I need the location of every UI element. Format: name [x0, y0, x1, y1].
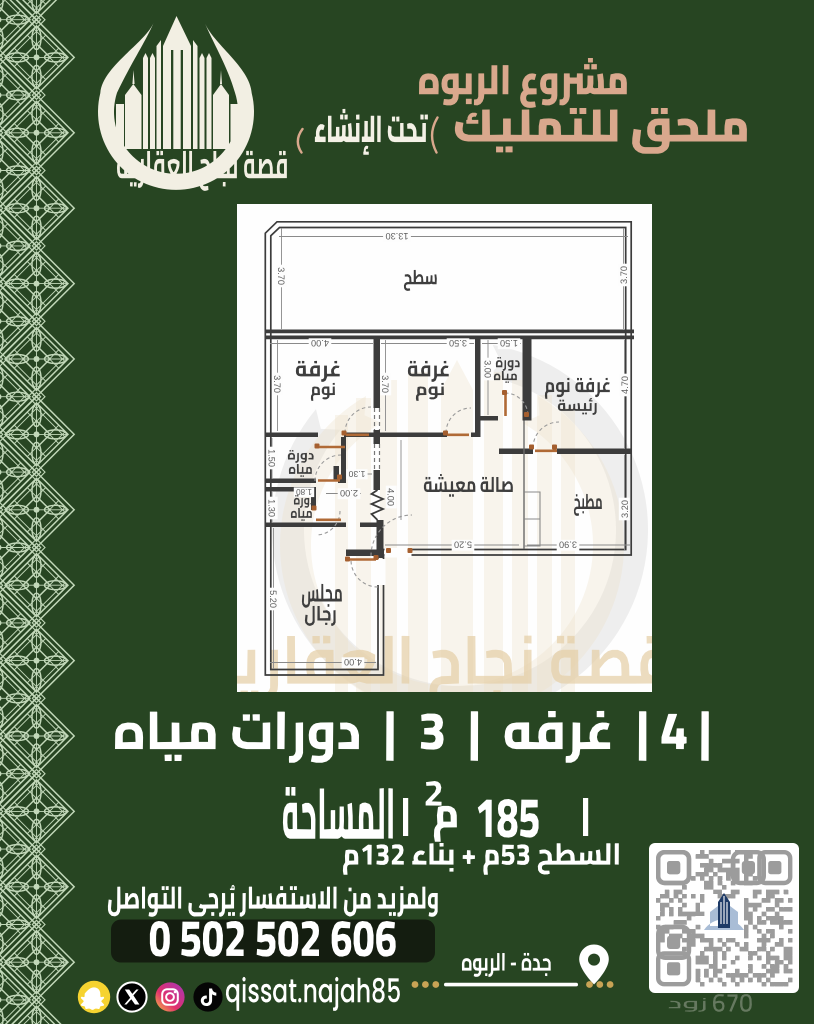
svg-text:3.00: 3.00	[483, 360, 493, 378]
svg-text:5.20: 5.20	[268, 590, 278, 608]
svg-text:4.00: 4.00	[311, 338, 329, 348]
svg-text:3.90: 3.90	[559, 540, 577, 550]
svg-text:3.20: 3.20	[620, 500, 630, 518]
svg-text:1.50: 1.50	[267, 449, 277, 467]
svg-text:1.30: 1.30	[348, 469, 365, 479]
svg-text:1.30: 1.30	[267, 499, 277, 517]
svg-text:4.00: 4.00	[344, 657, 362, 667]
svg-text:3.70: 3.70	[272, 375, 282, 393]
svg-text:5.20: 5.20	[454, 540, 472, 550]
svg-text:4.00: 4.00	[386, 488, 396, 506]
svg-text:3.70: 3.70	[619, 266, 629, 284]
svg-text:1.80: 1.80	[296, 487, 312, 496]
svg-text:3.70: 3.70	[276, 267, 286, 285]
svg-text:1.50: 1.50	[500, 338, 518, 348]
svg-text:13.30: 13.30	[386, 231, 409, 241]
svg-text:3.50: 3.50	[449, 338, 467, 348]
svg-text:4.70: 4.70	[620, 376, 630, 394]
svg-text:3.70: 3.70	[380, 375, 390, 393]
svg-text:2.00: 2.00	[340, 488, 358, 498]
